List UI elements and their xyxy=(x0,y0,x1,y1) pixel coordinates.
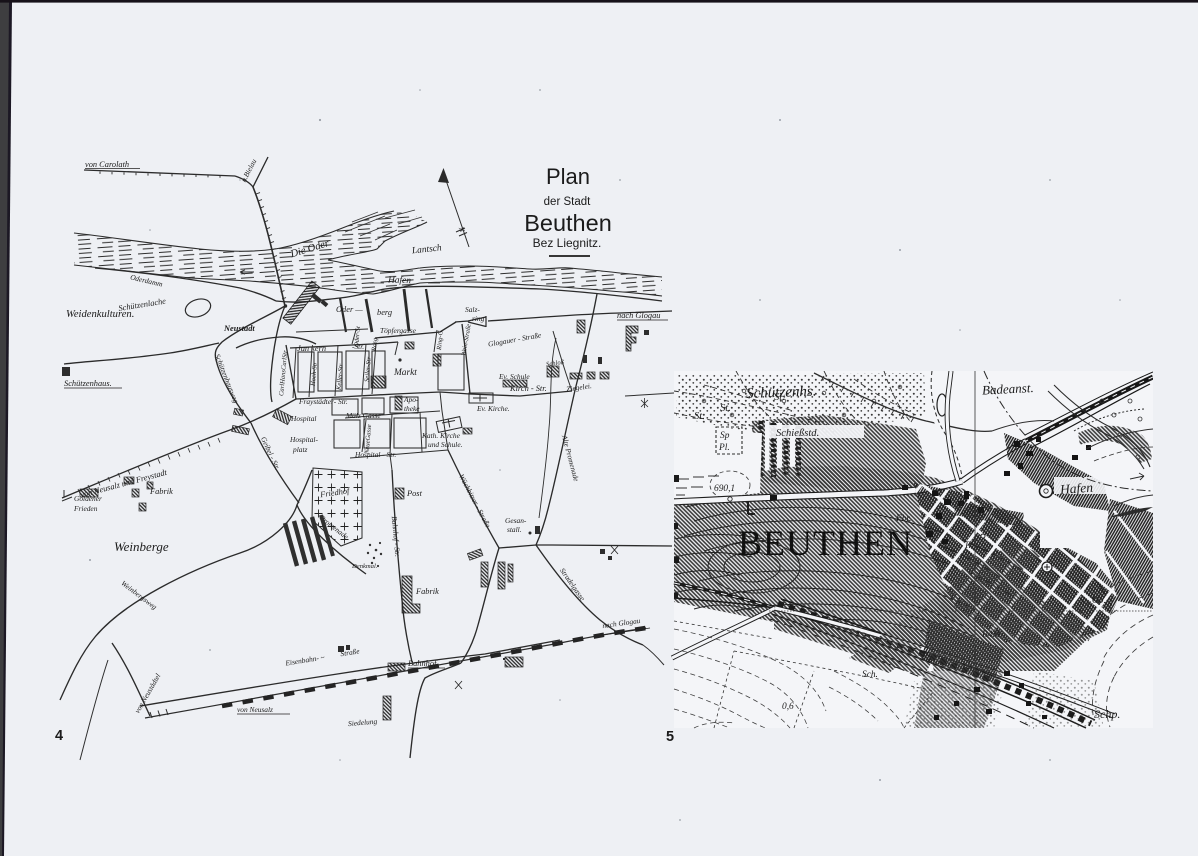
svg-text:Oder —: Oder — xyxy=(336,305,363,314)
svg-text:und Schule.: und Schule. xyxy=(428,440,463,449)
svg-text:Pl.: Pl. xyxy=(718,443,730,453)
svg-text:Schp.: Schp. xyxy=(1094,707,1120,721)
svg-text:Hospital-: Hospital- xyxy=(289,435,318,444)
svg-text:Fbr.: Fbr. xyxy=(895,514,911,524)
svg-text:B4.0: B4.0 xyxy=(982,630,1000,640)
svg-text:Salz-: Salz- xyxy=(465,305,480,314)
svg-text:T.: T. xyxy=(964,541,971,551)
svg-text:Fabrik: Fabrik xyxy=(415,587,439,596)
svg-text:Op.: Op. xyxy=(1092,596,1106,606)
svg-text:BEUTHEN: BEUTHEN xyxy=(738,523,913,563)
svg-text:Schützenhaus.: Schützenhaus. xyxy=(64,379,112,388)
svg-text:nach Glogau: nach Glogau xyxy=(617,311,661,320)
svg-text:ring: ring xyxy=(472,314,485,323)
svg-text:Weinberge: Weinberge xyxy=(114,539,169,554)
svg-text:von Carolath: von Carolath xyxy=(85,160,129,169)
svg-text:Sch.: Sch. xyxy=(862,670,878,680)
svg-text:0,6: 0,6 xyxy=(782,702,794,712)
svg-text:Frieden: Frieden xyxy=(73,504,98,513)
svg-text:Denkmal.: Denkmal. xyxy=(351,563,378,570)
svg-text:Post: Post xyxy=(406,489,423,498)
svg-text:Gesan-: Gesan- xyxy=(505,516,527,525)
svg-text:theke: theke xyxy=(404,404,420,413)
svg-text:Hafen: Hafen xyxy=(387,274,412,286)
svg-text:Fabrik: Fabrik xyxy=(149,487,173,496)
svg-text:berg: berg xyxy=(377,308,392,317)
svg-text:Bez Liegnitz.: Bez Liegnitz. xyxy=(533,236,602,250)
svg-text:stall.: stall. xyxy=(507,525,522,534)
svg-text:Ev. Kirche.: Ev. Kirche. xyxy=(476,404,510,413)
svg-text:Töpfergasse: Töpfergasse xyxy=(380,326,417,335)
svg-text:St.: St. xyxy=(694,411,705,422)
svg-text:Ev. Schule: Ev. Schule xyxy=(498,372,530,381)
svg-text:Hafen: Hafen xyxy=(1058,480,1093,497)
svg-text:Fraystädter- Str.: Fraystädter- Str. xyxy=(298,397,348,406)
svg-text:Sp: Sp xyxy=(720,431,730,441)
svg-text:Schießstd.: Schießstd. xyxy=(776,428,819,439)
svg-text:St.: St. xyxy=(774,392,785,403)
svg-text:Neustadt: Neustadt xyxy=(223,324,255,333)
svg-text:4: 4 xyxy=(55,728,63,744)
svg-text:Plan: Plan xyxy=(546,164,590,189)
svg-text:Mälz Gasse: Mälz Gasse xyxy=(345,411,381,420)
svg-text:Kath. Kirche: Kath. Kirche xyxy=(421,431,461,440)
svg-text:der Stadt: der Stadt xyxy=(544,196,591,208)
svg-text:platz: platz xyxy=(292,445,307,454)
svg-text:Goldener: Goldener xyxy=(74,494,102,503)
svg-text:Bahnhof: Bahnhof xyxy=(408,659,438,668)
svg-text:5: 5 xyxy=(666,729,674,745)
svg-text:Rosg: Rosg xyxy=(371,337,379,352)
svg-text:Beuthen: Beuthen xyxy=(524,210,612,236)
svg-text:Apo-: Apo- xyxy=(403,395,419,404)
svg-text:Hospital: Hospital xyxy=(290,414,316,423)
svg-text:von Neusalz: von Neusalz xyxy=(237,705,273,714)
svg-text:Weidenkulturen.: Weidenkulturen. xyxy=(66,309,134,320)
svg-text:St.: St. xyxy=(720,403,731,414)
svg-text:690,1: 690,1 xyxy=(714,484,735,494)
svg-text:Markt: Markt xyxy=(393,368,417,378)
